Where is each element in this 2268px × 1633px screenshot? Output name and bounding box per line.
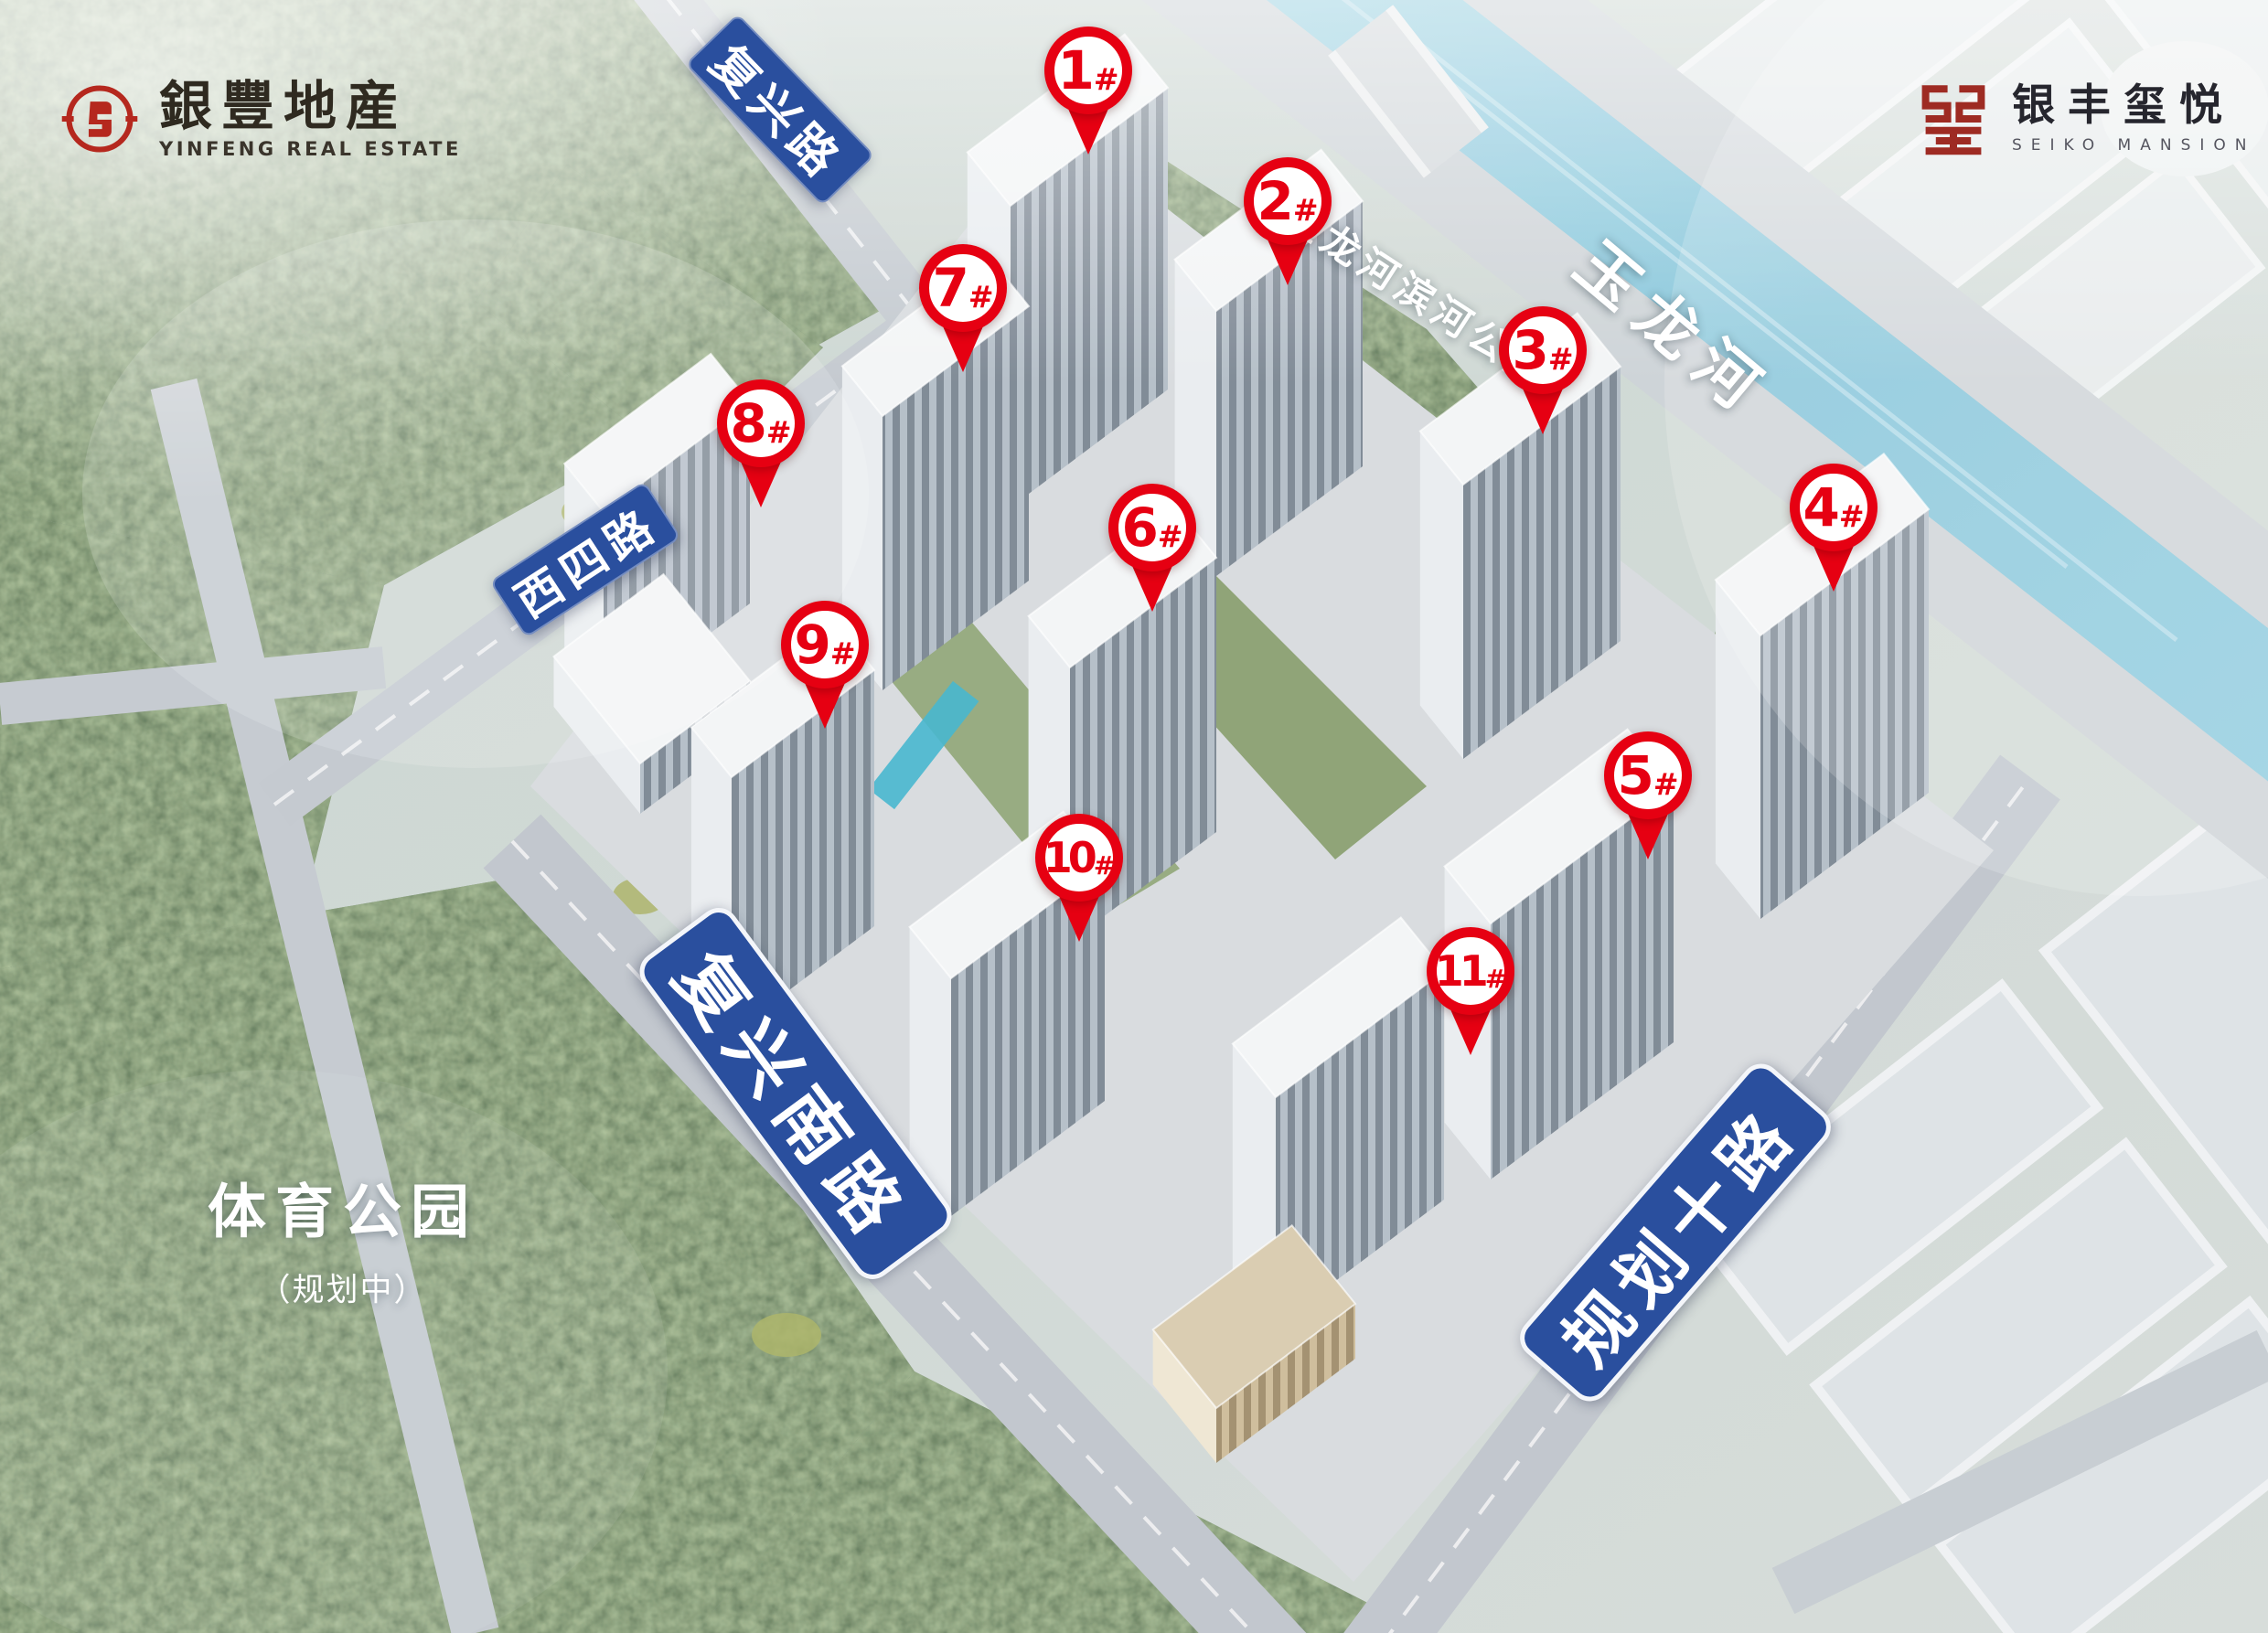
marker-hash: # <box>1548 344 1574 374</box>
marker-number: 1 <box>1057 44 1092 97</box>
marker-number: 11 <box>1435 950 1484 992</box>
marker-hash: # <box>1653 769 1679 799</box>
building-marker-3: 3# <box>1499 306 1587 394</box>
building-marker-11: 11# <box>1427 927 1514 1015</box>
building-marker-5: 5# <box>1604 731 1692 819</box>
building-marker-1: 1# <box>1044 27 1132 114</box>
marker-hash: # <box>1293 195 1319 225</box>
marker-pin-circle: 3# <box>1499 306 1587 394</box>
marker-pin-circle: 11# <box>1427 927 1514 1015</box>
marker-pin-circle: 4# <box>1790 464 1878 551</box>
building-marker-8: 8# <box>717 379 805 467</box>
sports-park-title: 体育公园 <box>208 1166 478 1250</box>
marker-number: 10 <box>1043 837 1093 879</box>
yinfeng-name-cn: 銀豐地産 <box>159 79 462 134</box>
marker-number: 4 <box>1803 481 1837 534</box>
site-aerial-render <box>0 0 2268 1633</box>
marker-pin-circle: 9# <box>781 601 869 688</box>
seiko-mansion-logo: 银丰玺悦 SEIKO MANSION <box>1917 82 2255 155</box>
yinfeng-logo: 銀豐地産 YINFENG REAL ESTATE <box>60 79 462 160</box>
marker-pin-circle: 8# <box>717 379 805 467</box>
aerial-master-plan: { "branding": { "yinfeng": { "cn": "銀豐地産… <box>0 0 2268 1633</box>
marker-number: 8 <box>730 397 765 450</box>
seiko-name-en: SEIKO MANSION <box>2012 136 2255 155</box>
building-marker-7: 7# <box>919 244 1007 332</box>
marker-pin-circle: 5# <box>1604 731 1692 819</box>
building-marker-4: 4# <box>1790 464 1878 551</box>
sports-park-note: （规划中） <box>208 1265 478 1311</box>
marker-pin-circle: 1# <box>1044 27 1132 114</box>
seiko-name-cn: 银丰玺悦 <box>2012 84 2255 127</box>
marker-pin-circle: 10# <box>1035 814 1123 902</box>
building-marker-10: 10# <box>1035 814 1123 902</box>
marker-number: 6 <box>1121 501 1156 554</box>
marker-hash: # <box>1094 64 1119 94</box>
building-marker-2: 2# <box>1244 157 1332 245</box>
building-marker-9: 9# <box>781 601 869 688</box>
marker-hash: # <box>1158 521 1183 551</box>
sports-park-label: 体育公园 （规划中） <box>208 1166 478 1311</box>
marker-pin-circle: 6# <box>1108 484 1196 571</box>
marker-number: 5 <box>1617 749 1652 802</box>
yinfeng-name-en: YINFENG REAL ESTATE <box>159 138 462 160</box>
marker-hash: # <box>1839 501 1865 531</box>
yinfeng-seal-icon <box>60 80 139 158</box>
building-marker-6: 6# <box>1108 484 1196 571</box>
marker-hash: # <box>766 417 792 447</box>
marker-pin-circle: 2# <box>1244 157 1332 245</box>
marker-number: 7 <box>932 261 967 315</box>
marker-number: 9 <box>794 618 829 671</box>
marker-pin-circle: 7# <box>919 244 1007 332</box>
seiko-mansion-monogram-icon <box>1917 82 1990 155</box>
marker-hash: # <box>1094 853 1115 879</box>
marker-hash: # <box>968 282 994 312</box>
marker-hash: # <box>1485 966 1506 992</box>
marker-number: 2 <box>1257 175 1291 228</box>
marker-number: 3 <box>1512 324 1546 377</box>
marker-hash: # <box>830 638 856 668</box>
